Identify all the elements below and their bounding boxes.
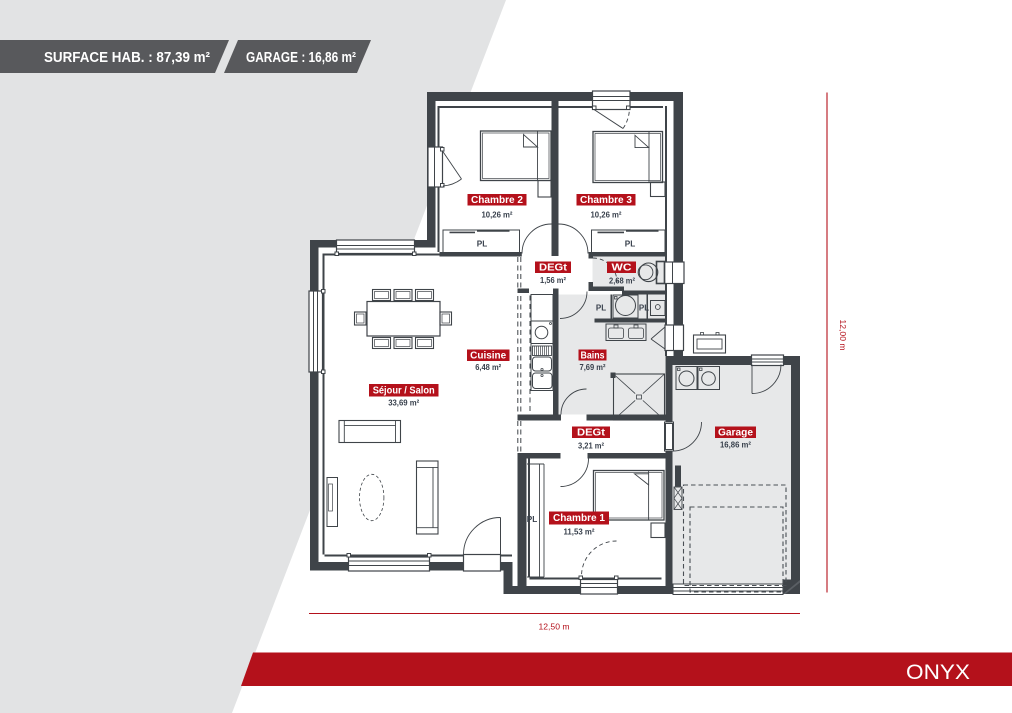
- svg-text:Bains: Bains: [581, 350, 605, 361]
- svg-text:PL: PL: [639, 304, 649, 313]
- svg-text:10,26 m²: 10,26 m²: [482, 210, 513, 220]
- svg-text:7,69 m²: 7,69 m²: [580, 362, 606, 372]
- svg-text:PL: PL: [625, 240, 635, 249]
- svg-text:1,56 m²: 1,56 m²: [540, 275, 566, 285]
- svg-text:PL: PL: [477, 240, 487, 249]
- svg-text:WC: WC: [612, 263, 632, 274]
- svg-text:3,21 m²: 3,21 m²: [578, 441, 604, 451]
- svg-text:ONYX: ONYX: [906, 660, 970, 684]
- svg-text:12,00 m: 12,00 m: [838, 319, 848, 350]
- svg-text:PL: PL: [527, 515, 537, 524]
- svg-text:2,68 m²: 2,68 m²: [609, 276, 635, 286]
- svg-text:33,69 m²: 33,69 m²: [388, 398, 419, 408]
- svg-text:DEGt: DEGt: [539, 263, 568, 274]
- svg-text:Cuisine: Cuisine: [470, 351, 507, 362]
- svg-text:16,86 m²: 16,86 m²: [720, 440, 751, 450]
- svg-text:12,50 m: 12,50 m: [538, 622, 569, 632]
- svg-text:6,48 m²: 6,48 m²: [475, 362, 501, 372]
- svg-text:GARAGE : 16,86 m²: GARAGE : 16,86 m²: [246, 50, 356, 66]
- svg-text:Garage: Garage: [718, 428, 754, 439]
- svg-text:10,26 m²: 10,26 m²: [591, 210, 622, 220]
- svg-text:Séjour / Salon: Séjour / Salon: [373, 386, 435, 397]
- svg-text:Chambre 2: Chambre 2: [471, 195, 524, 206]
- svg-text:PL: PL: [596, 304, 606, 313]
- svg-text:Chambre 3: Chambre 3: [580, 195, 633, 206]
- svg-text:11,53 m²: 11,53 m²: [564, 527, 595, 537]
- svg-text:Chambre 1: Chambre 1: [553, 513, 606, 524]
- svg-text:SURFACE HAB. : 87,39 m²: SURFACE HAB. : 87,39 m²: [44, 50, 210, 66]
- svg-text:DEGt: DEGt: [577, 428, 606, 439]
